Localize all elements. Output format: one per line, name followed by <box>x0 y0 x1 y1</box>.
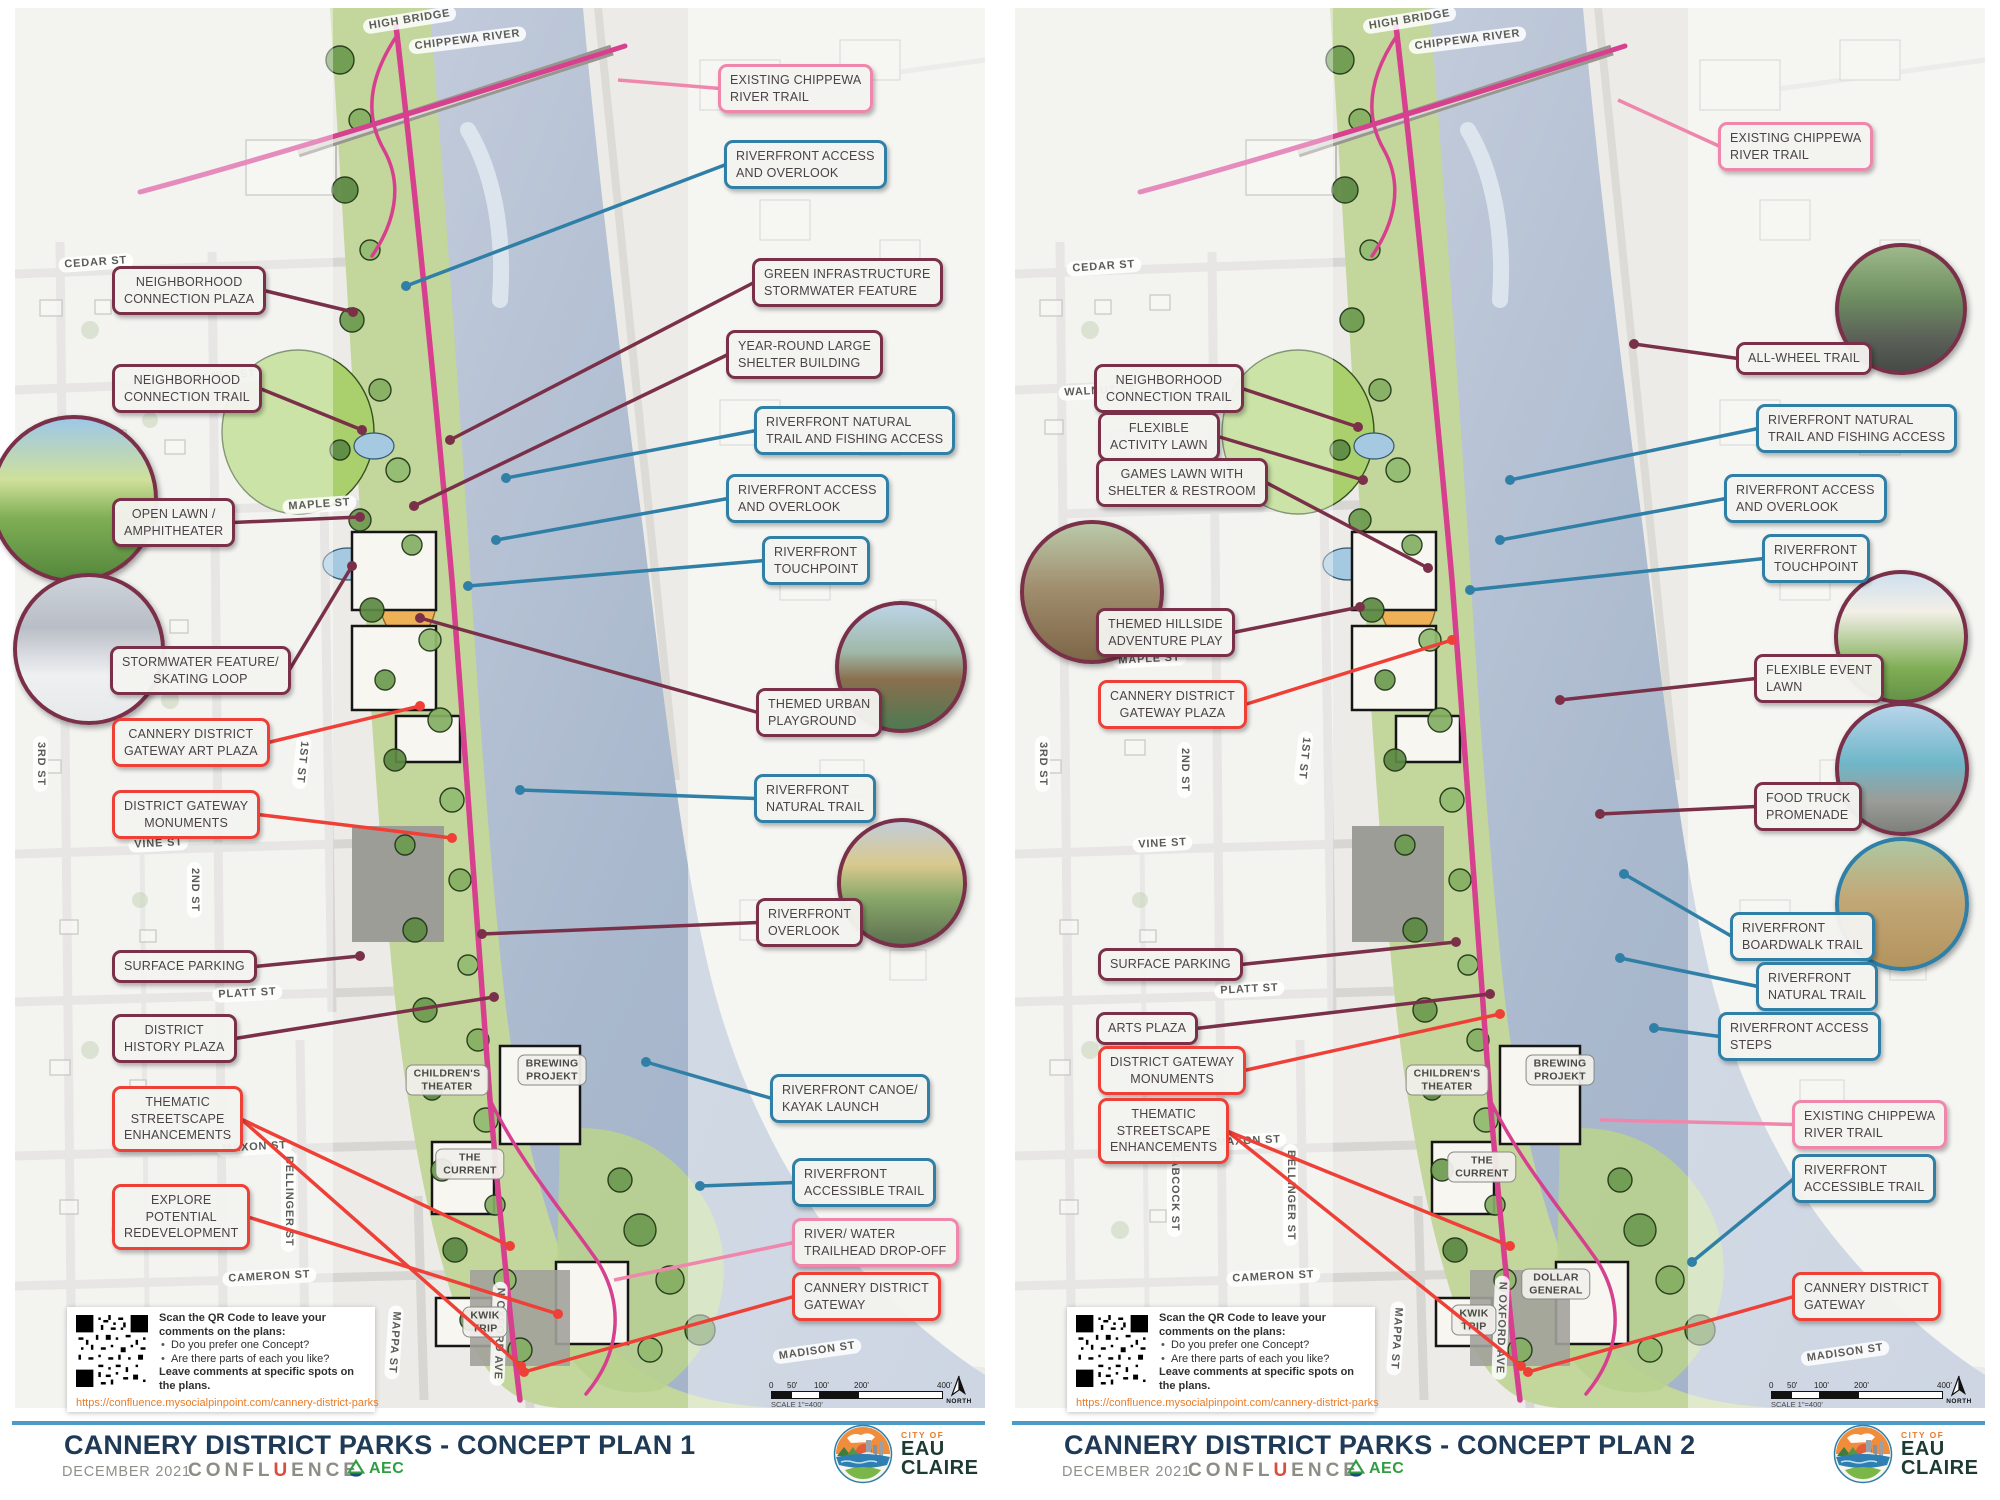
scale-label: SCALE 1"=400' <box>771 1400 943 1409</box>
callout-riverfront-touchpoint: RIVERFRONT TOUCHPOINT <box>762 536 870 585</box>
building-label-kwik-trip: KWIK TRIP <box>1451 1305 1496 1336</box>
street-label-bellinger-st: BELLINGER ST <box>281 1150 296 1252</box>
north-arrow: NORTH <box>942 1374 976 1405</box>
scale-tick: 50' <box>787 1381 797 1390</box>
callout-district-history-plaza: DISTRICT HISTORY PLAZA <box>112 1014 237 1063</box>
qr-code <box>1076 1315 1148 1387</box>
building-label-the-current: THE CURRENT <box>435 1149 504 1180</box>
callout-neighborhood-connection-plaza: NEIGHBORHOOD CONNECTION PLAZA <box>112 266 266 315</box>
callout-riverfront-access-and-overlook: RIVERFRONT ACCESS AND OVERLOOK <box>726 474 889 523</box>
street-label-3rd-st: 3RD ST <box>1035 736 1050 792</box>
city-of-eau-claire-logo: CITY OF EAU CLAIRE <box>833 1424 978 1484</box>
comment-url-link[interactable]: https://confluence.mysocialpinpoint.com/… <box>76 1397 379 1409</box>
callout-riverfront-canoe-kayak-launch: RIVERFRONT CANOE/ KAYAK LAUNCH <box>770 1074 930 1123</box>
callout-district-gateway-monuments: DISTRICT GATEWAY MONUMENTS <box>112 790 260 839</box>
qr-heading: Scan the QR Code to leave your comments … <box>1159 1312 1369 1339</box>
callout-food-truck-promenade: FOOD TRUCK PROMENADE <box>1754 782 1862 831</box>
callout-explore-potential-redevelopment: EXPLORE POTENTIAL REDEVELOPMENT <box>112 1184 250 1250</box>
scale-label: SCALE 1"=400' <box>1771 1400 1943 1409</box>
qr-heading: Scan the QR Code to leave your comments … <box>159 1312 369 1339</box>
callout-riverfront-accessible-trail: RIVERFRONT ACCESSIBLE TRAIL <box>792 1158 936 1207</box>
qr-code-icon <box>1076 1315 1148 1387</box>
scale-bar-segments <box>1771 1391 1943 1399</box>
map-annotations: HIGH BRIDGECHIPPEWA RIVERCEDAR STWALNUT … <box>0 0 1000 1500</box>
plan-2-title: CANNERY DISTRICT PARKS - CONCEPT PLAN 2 <box>1064 1430 1695 1460</box>
callout-neighborhood-connection-trail: NEIGHBORHOOD CONNECTION TRAIL <box>1094 364 1244 413</box>
bullet-icon: • <box>161 1339 165 1353</box>
street-label-chippewa-river: CHIPPEWA RIVER <box>408 26 527 55</box>
street-label-platt-st: PLATT ST <box>1214 980 1285 999</box>
street-label-platt-st: PLATT ST <box>212 984 283 1003</box>
comment-url-link[interactable]: https://confluence.mysocialpinpoint.com/… <box>1076 1397 1379 1409</box>
building-label-children-s-theater: CHILDREN'S THEATER <box>406 1065 489 1096</box>
callout-flexible-event-lawn: FLEXIBLE EVENT LAWN <box>1754 654 1884 703</box>
street-label-bellinger-st: BELLINGER ST <box>1283 1144 1298 1246</box>
north-arrow-icon <box>947 1374 971 1398</box>
comment-qr-box: Scan the QR Code to leave your comments … <box>67 1307 375 1412</box>
street-label-cameron-st: CAMERON ST <box>222 1267 317 1287</box>
street-label-mappa-st: MAPPA ST <box>384 1305 404 1380</box>
aec-icon <box>347 1459 365 1479</box>
street-label-3rd-st: 3RD ST <box>33 736 48 792</box>
callout-cannery-district-gateway: CANNERY DISTRICT GATEWAY <box>1792 1272 1941 1321</box>
callout-games-lawn-with-shelter-restroom: GAMES LAWN WITH SHELTER & RESTROOM <box>1096 458 1268 507</box>
callout-riverfront-access-and-overlook: RIVERFRONT ACCESS AND OVERLOOK <box>1724 474 1887 523</box>
building-label-children-s-theater: CHILDREN'S THEATER <box>1406 1065 1489 1096</box>
qr-code <box>76 1315 148 1387</box>
qr-bullet-2: •Are there parts of each you like? <box>1159 1353 1369 1367</box>
callout-riverfront-natural-trail-and-fishing-access: RIVERFRONT NATURAL TRAIL AND FISHING ACC… <box>754 406 955 455</box>
confluence-logo: CONFLUENCE <box>188 1460 360 1482</box>
callout-green-infrastructure-stormwater-feature: GREEN INFRASTRUCTURE STORMWATER FEATURE <box>752 258 943 307</box>
street-label-cameron-st: CAMERON ST <box>1226 1267 1321 1287</box>
map-annotations: HIGH BRIDGECHIPPEWA RIVERCEDAR STWALNUT … <box>1000 0 2000 1500</box>
bullet-icon: • <box>1161 1339 1165 1353</box>
callout-thematic-streetscape-enhancements: THEMATIC STREETSCAPE ENHANCEMENTS <box>112 1086 243 1152</box>
callout-riverfront-access-steps: RIVERFRONT ACCESS STEPS <box>1718 1012 1881 1061</box>
callout-district-gateway-monuments: DISTRICT GATEWAY MONUMENTS <box>1098 1046 1246 1095</box>
north-label: NORTH <box>1942 1398 1976 1405</box>
callout-riverfront-accessible-trail: RIVERFRONT ACCESSIBLE TRAIL <box>1792 1154 1936 1203</box>
cannery-district-parks-poster: HIGH BRIDGECHIPPEWA RIVERCEDAR STWALNUT … <box>0 0 2000 1500</box>
scale-ticks: 050'100'200'400' <box>771 1381 943 1391</box>
scale-tick: 200' <box>1854 1381 1869 1390</box>
callout-all-wheel-trail: ALL-WHEEL TRAIL <box>1736 342 1872 375</box>
callout-open-lawn-amphitheater: OPEN LAWN / AMPHITHEATER <box>112 498 235 547</box>
street-label-vine-st: VINE ST <box>1132 835 1193 853</box>
callout-existing-chippewa-river-trail: EXISTING CHIPPEWA RIVER TRAIL <box>718 64 873 113</box>
qr-note: Leave comments at specific spots on the … <box>159 1366 369 1393</box>
bullet-icon: • <box>161 1353 165 1367</box>
city-logo-icon <box>833 1424 893 1484</box>
north-arrow-icon <box>1947 1374 1971 1398</box>
street-label-1st-st: 1ST ST <box>1293 730 1314 785</box>
callout-stormwater-feature-skating-loop: STORMWATER FEATURE/ SKATING LOOP <box>110 646 291 695</box>
callout-riverfront-overlook: RIVERFRONT OVERLOOK <box>756 898 863 947</box>
city-of-eau-claire-logo: CITY OF EAU CLAIRE <box>1833 1424 1978 1484</box>
city-logo-icon <box>1833 1424 1893 1484</box>
callout-year-round-large-shelter-building: YEAR-ROUND LARGE SHELTER BUILDING <box>726 330 883 379</box>
callout-riverfront-natural-trail: RIVERFRONT NATURAL TRAIL <box>754 774 876 823</box>
street-label-2nd-st: 2ND ST <box>187 862 202 918</box>
callout-themed-urban-playground: THEMED URBAN PLAYGROUND <box>756 688 882 737</box>
callout-riverfront-boardwalk-trail: RIVERFRONT BOARDWALK TRAIL <box>1730 912 1875 961</box>
callout-riverfront-natural-trail: RIVERFRONT NATURAL TRAIL <box>1756 962 1878 1011</box>
callout-cannery-district-gateway: CANNERY DISTRICT GATEWAY <box>792 1272 941 1321</box>
scale-bar: 050'100'200'400' SCALE 1"=400' <box>1771 1381 1943 1409</box>
callout-arts-plaza: ARTS PLAZA <box>1096 1012 1198 1045</box>
street-label-high-bridge: HIGH BRIDGE <box>1362 5 1457 35</box>
city-logo-circle <box>1833 1424 1893 1484</box>
street-label-madison-st: MADISON ST <box>1800 1340 1890 1367</box>
city-logo-circle <box>833 1424 893 1484</box>
street-label-2nd-st: 2ND ST <box>1177 742 1192 798</box>
callout-riverfront-touchpoint: RIVERFRONT TOUCHPOINT <box>1762 534 1870 583</box>
plan-date: DECEMBER 2021 <box>1062 1464 1191 1480</box>
callout-riverfront-natural-trail-and-fishing-access: RIVERFRONT NATURAL TRAIL AND FISHING ACC… <box>1756 404 1957 453</box>
building-label-dollar-general: DOLLAR GENERAL <box>1521 1269 1590 1300</box>
callout-cannery-district-gateway-plaza: CANNERY DISTRICT GATEWAY PLAZA <box>1098 680 1247 729</box>
scale-tick: 100' <box>1814 1381 1829 1390</box>
street-label-high-bridge: HIGH BRIDGE <box>362 5 457 35</box>
qr-bullet-1: •Do you prefer one Concept? <box>159 1339 369 1353</box>
north-label: NORTH <box>942 1398 976 1405</box>
concept-plan-1-panel: HIGH BRIDGECHIPPEWA RIVERCEDAR STWALNUT … <box>0 0 1000 1500</box>
qr-note: Leave comments at specific spots on the … <box>1159 1366 1369 1393</box>
qr-code-icon <box>76 1315 148 1387</box>
callout-flexible-activity-lawn: FLEXIBLE ACTIVITY LAWN <box>1098 412 1220 461</box>
callout-cannery-district-gateway-art-plaza: CANNERY DISTRICT GATEWAY ART PLAZA <box>112 718 270 767</box>
scale-tick: 50' <box>1787 1381 1797 1390</box>
building-label-the-current: THE CURRENT <box>1447 1152 1516 1183</box>
bullet-icon: • <box>1161 1353 1165 1367</box>
callout-existing-chippewa-river-trail: EXISTING CHIPPEWA RIVER TRAIL <box>1718 122 1873 171</box>
callout-riverfront-access-and-overlook: RIVERFRONT ACCESS AND OVERLOOK <box>724 140 887 189</box>
scale-tick: 0 <box>769 1381 773 1390</box>
building-label-brewing-projekt: BREWING PROJEKT <box>518 1055 587 1086</box>
comment-qr-box: Scan the QR Code to leave your comments … <box>1067 1307 1375 1412</box>
scale-tick: 200' <box>854 1381 869 1390</box>
callout-thematic-streetscape-enhancements: THEMATIC STREETSCAPE ENHANCEMENTS <box>1098 1098 1229 1164</box>
callout-river-water-trailhead-drop-off: RIVER/ WATER TRAILHEAD DROP-OFF <box>792 1218 959 1267</box>
callout-existing-chippewa-river-trail: EXISTING CHIPPEWA RIVER TRAIL <box>1792 1100 1947 1149</box>
aec-logo: AEC <box>1347 1459 1404 1479</box>
confluence-logo: CONFLUENCE <box>1188 1460 1360 1482</box>
concept-plan-2-panel: HIGH BRIDGECHIPPEWA RIVERCEDAR STWALNUT … <box>1000 0 2000 1500</box>
building-label-brewing-projekt: BREWING PROJEKT <box>1526 1055 1595 1086</box>
street-label-1st-st: 1ST ST <box>291 734 312 789</box>
aec-icon <box>1347 1459 1365 1479</box>
street-label-mappa-st: MAPPA ST <box>1386 1301 1406 1376</box>
plan-date: DECEMBER 2021 <box>62 1464 191 1480</box>
callout-surface-parking: SURFACE PARKING <box>112 950 257 983</box>
plan-1-title: CANNERY DISTRICT PARKS - CONCEPT PLAN 1 <box>64 1430 695 1460</box>
callout-neighborhood-connection-trail: NEIGHBORHOOD CONNECTION TRAIL <box>112 364 262 413</box>
scale-bar: 050'100'200'400' SCALE 1"=400' <box>771 1381 943 1409</box>
street-label-maple-st: MAPLE ST <box>282 495 357 515</box>
qr-bullet-2: •Are there parts of each you like? <box>159 1353 369 1367</box>
building-label-kwik-trip: KWIK TRIP <box>462 1307 507 1338</box>
scale-tick: 100' <box>814 1381 829 1390</box>
street-label-madison-st: MADISON ST <box>772 1338 862 1365</box>
aec-logo: AEC <box>347 1459 404 1479</box>
scale-bar-segments <box>771 1391 943 1399</box>
callout-surface-parking: SURFACE PARKING <box>1098 948 1243 981</box>
callout-themed-hillside-adventure-play: THEMED HILLSIDE ADVENTURE PLAY <box>1096 608 1235 657</box>
scale-tick: 0 <box>1769 1381 1773 1390</box>
street-label-chippewa-river: CHIPPEWA RIVER <box>1408 26 1527 55</box>
scale-ticks: 050'100'200'400' <box>1771 1381 1943 1391</box>
street-label-cedar-st: CEDAR ST <box>1066 257 1141 277</box>
north-arrow: NORTH <box>1942 1374 1976 1405</box>
qr-bullet-1: •Do you prefer one Concept? <box>1159 1339 1369 1353</box>
